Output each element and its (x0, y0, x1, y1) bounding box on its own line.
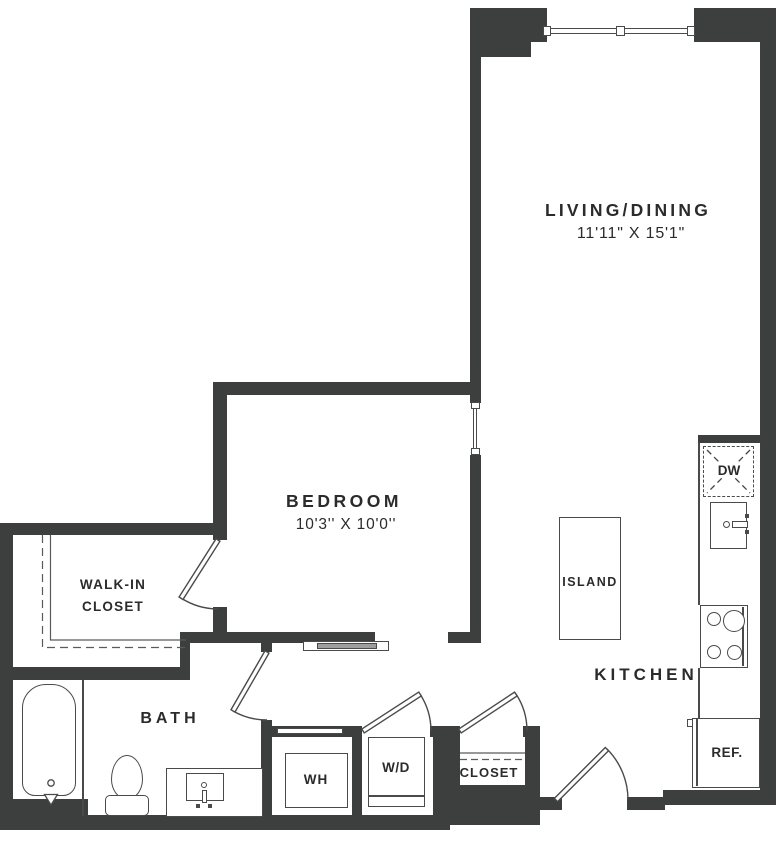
vanity-handle-left (196, 804, 200, 808)
living-room-dims: 11'11" X 15'1" (531, 225, 731, 243)
wall-between-wd-closet-doors (430, 726, 460, 737)
refrigerator-label: REF. (687, 746, 767, 761)
entry-door (554, 747, 628, 801)
stove-burner-tr (723, 610, 745, 632)
toilet-tank (105, 795, 149, 816)
living-window-cap-right (687, 26, 695, 36)
kitchen-faucet-dot-top (745, 514, 749, 518)
stove-burner-bl (707, 645, 721, 659)
wall-walkin-north (0, 523, 213, 535)
walkin-closet-label-line1: WALK-IN (53, 578, 173, 593)
bath-label: BATH (110, 710, 230, 728)
walkin-closet-door (179, 539, 220, 609)
stove-burner-tl (707, 612, 721, 626)
toilet-bowl (111, 755, 143, 799)
wall-walkin-door-jamb (213, 607, 227, 632)
wall-bedroom-north (213, 382, 481, 395)
wh-louver-door (277, 728, 343, 735)
living-window-cap-left (543, 26, 551, 36)
wall-kitchen-counter-top (698, 435, 776, 443)
bedroom-window-cap-top (471, 402, 480, 409)
island-label: ISLAND (545, 576, 635, 590)
wall-right-upper (760, 42, 776, 443)
bedroom-window-cap-bottom (471, 448, 480, 455)
closet-door (459, 692, 527, 733)
wall-entry-stub (540, 797, 562, 810)
kitchen-label: KITCHEN (576, 666, 716, 685)
wall-bath-door-jamb (261, 643, 272, 652)
wall-living-topleft-b (470, 42, 531, 57)
washer-dryer-divider (369, 795, 424, 797)
wall-bedroom-east-below-window (470, 455, 481, 632)
wall-closet-north-right (523, 726, 540, 737)
dishwasher-label: DW (704, 464, 754, 479)
bath-door (231, 651, 269, 720)
tub-alcove-line (82, 680, 84, 816)
stove-burner-br (727, 645, 742, 660)
wall-living-topleft-a (470, 8, 547, 42)
refrigerator-hinge (687, 719, 693, 727)
wall-bedroom-west (213, 395, 227, 540)
kitchen-counter-edge-upper (698, 443, 700, 605)
kitchen-sink-drain (723, 521, 730, 528)
bedroom-label: BEDROOM (244, 492, 444, 511)
living-room-label: LIVING/DINING (518, 201, 738, 220)
wall-bottom-entry (627, 797, 665, 810)
washer-dryer-door (362, 692, 431, 733)
wall-living-foot (448, 632, 481, 643)
living-window-cap-mid (616, 26, 625, 36)
floor-plan: LIVING/DINING 11'11" X 15'1" BEDROOM 10'… (0, 0, 776, 844)
walkin-closet-label-line2: CLOSET (53, 600, 173, 615)
bedroom-dims: 10'3'' X 10'0'' (246, 516, 446, 533)
vanity-handle-right (208, 804, 212, 808)
water-heater-label: WH (276, 773, 356, 788)
bedroom-window (473, 408, 477, 448)
dishwasher-label-text: DW (716, 463, 743, 478)
wall-bottom-left (0, 815, 450, 830)
wall-living-topright (694, 8, 776, 42)
wall-bottom-right (663, 790, 776, 805)
kitchen-faucet (732, 521, 748, 528)
closet-label: CLOSET (439, 766, 539, 780)
bedroom-sliding-door-panel (317, 643, 377, 650)
wall-right-lower (760, 443, 776, 793)
vanity-faucet-knob (201, 782, 207, 788)
kitchen-faucet-dot-bottom (745, 530, 749, 534)
closet-shelf-lines (460, 753, 525, 760)
wall-west-outer (0, 523, 13, 830)
vanity-faucet-stem (202, 790, 207, 803)
wall-living-west (470, 57, 481, 382)
wall-bath-north (13, 667, 188, 680)
bathtub (22, 684, 76, 796)
washer-dryer-label: W/D (346, 761, 446, 776)
